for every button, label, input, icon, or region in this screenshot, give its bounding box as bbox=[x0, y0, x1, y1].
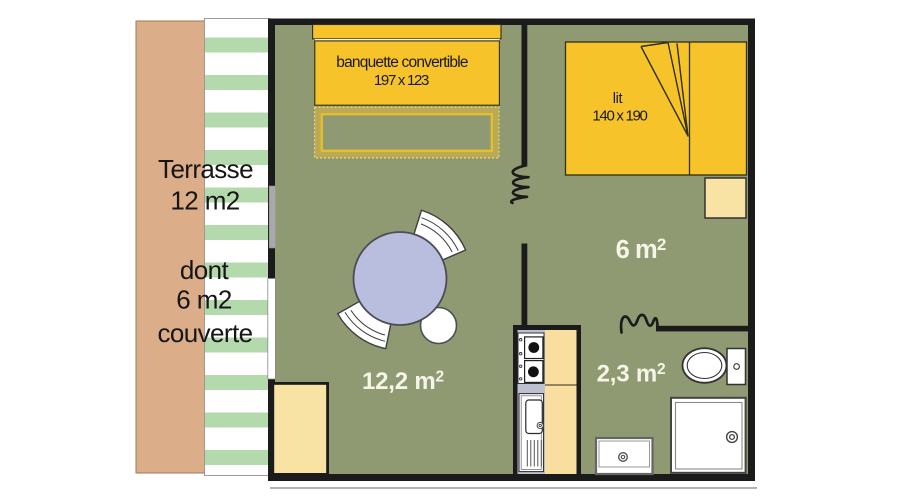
svg-text:12,2 m2: 12,2 m2 bbox=[362, 368, 444, 395]
svg-text:banquette convertible: banquette convertible bbox=[336, 54, 468, 71]
svg-text:Terrasse: Terrasse bbox=[158, 154, 253, 184]
svg-text:140 x 190: 140 x 190 bbox=[592, 108, 647, 125]
svg-text:2,3 m2: 2,3 m2 bbox=[597, 361, 666, 388]
svg-text:12 m2: 12 m2 bbox=[170, 186, 239, 216]
svg-text:lit: lit bbox=[613, 91, 623, 107]
svg-text:dont: dont bbox=[180, 255, 230, 285]
svg-text:couverte: couverte bbox=[158, 318, 253, 348]
svg-text:197 x 123: 197 x 123 bbox=[374, 72, 429, 89]
svg-text:6 m2: 6 m2 bbox=[176, 285, 232, 315]
